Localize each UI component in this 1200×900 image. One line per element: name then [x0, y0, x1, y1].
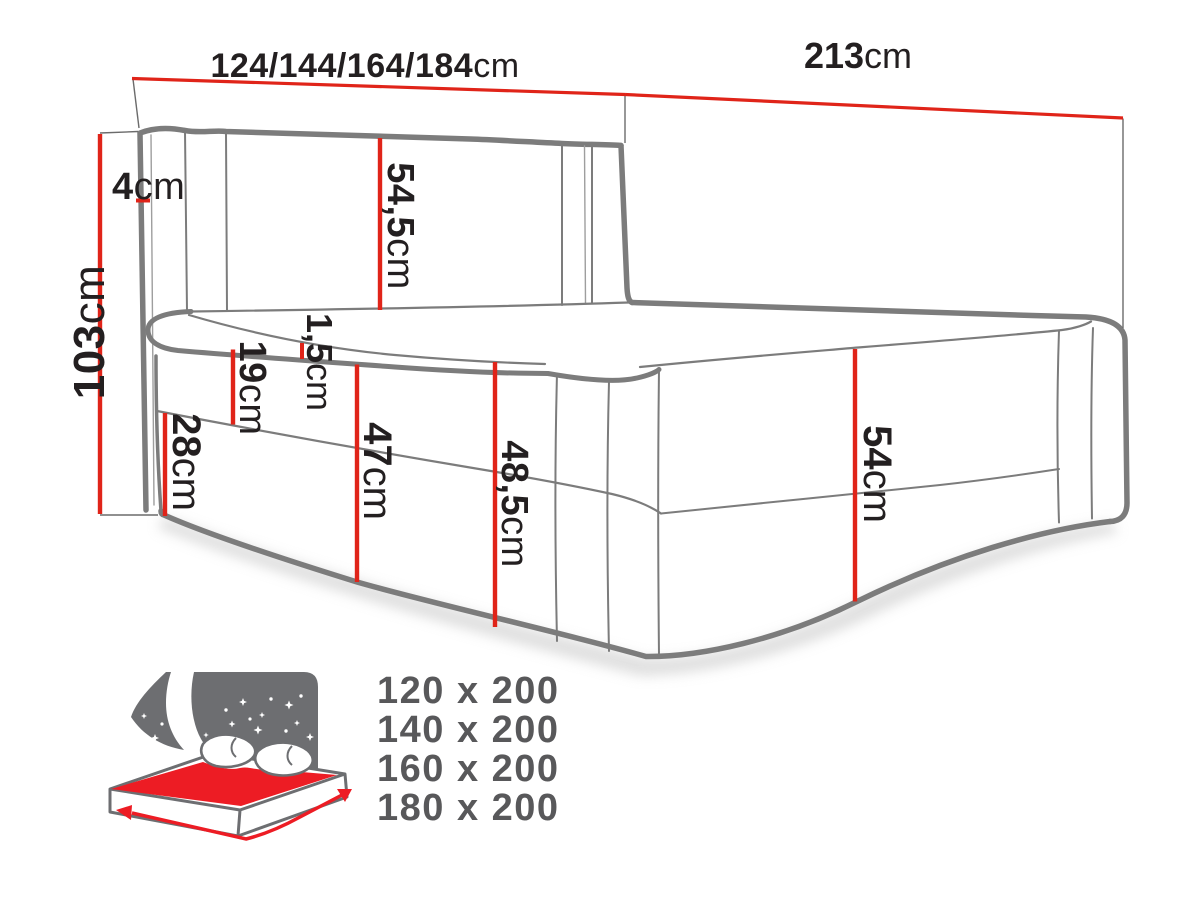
size-item: 160 x 200: [377, 748, 560, 790]
mattress-lip-edge: [148, 312, 659, 381]
headboard-piping-right: [585, 146, 586, 303]
mattress: [148, 303, 1127, 522]
corner-seam: [608, 382, 610, 652]
bed-bottom-edge: [161, 511, 1110, 657]
pillow-left: [201, 735, 255, 767]
dimension-labels: 124/144/164/184cm 213cm 103cm 4cm 54,5cm…: [65, 35, 912, 568]
dim-label-width: 124/144/164/184cm: [210, 47, 519, 85]
bed-dimension-diagram: 124/144/164/184cm 213cm 103cm 4cm 54,5cm…: [0, 0, 1200, 900]
size-item: 120 x 200: [377, 670, 560, 712]
foot-seam: [1091, 328, 1093, 519]
headboard-seam: [185, 132, 187, 312]
dim-label-total-height: 103cm: [65, 265, 114, 400]
dim-label-mattress: 19cm: [231, 341, 273, 436]
corner-seam: [658, 370, 659, 656]
dim-line-length: [625, 95, 1123, 119]
dim-label-side-height: 54cm: [855, 425, 899, 523]
corner-seam: [556, 374, 558, 642]
dim-label-front-total: 48,5cm: [493, 440, 535, 568]
dim-label-headboard: 54,5cm: [379, 162, 421, 290]
size-item: 140 x 200: [377, 709, 560, 751]
headboard-seam: [226, 133, 227, 311]
dim-label-length: 213cm: [804, 35, 912, 76]
dim-label-front-height: 47cm: [355, 422, 399, 520]
mattress-far-edge: [191, 303, 629, 312]
pillow-right: [255, 743, 313, 776]
storage-bed-icon: [110, 672, 352, 839]
base-left-edge: [156, 356, 161, 511]
dim-label-lip: 1,5cm: [299, 313, 340, 411]
size-list: 120 x 200 140 x 200 160 x 200 180 x 200: [377, 670, 560, 829]
diagram-canvas: 124/144/164/184cm 213cm 103cm 4cm 54,5cm…: [0, 0, 1200, 900]
size-item: 180 x 200: [377, 787, 560, 829]
foot-seam: [1058, 331, 1060, 523]
bed-icon-corner: [238, 810, 240, 836]
mattress-side-edge: [640, 322, 1091, 368]
bed-drawing: [140, 128, 1127, 656]
dim-label-box: 28cm: [164, 413, 208, 511]
dim-label-side-panel: 4cm: [112, 166, 185, 208]
